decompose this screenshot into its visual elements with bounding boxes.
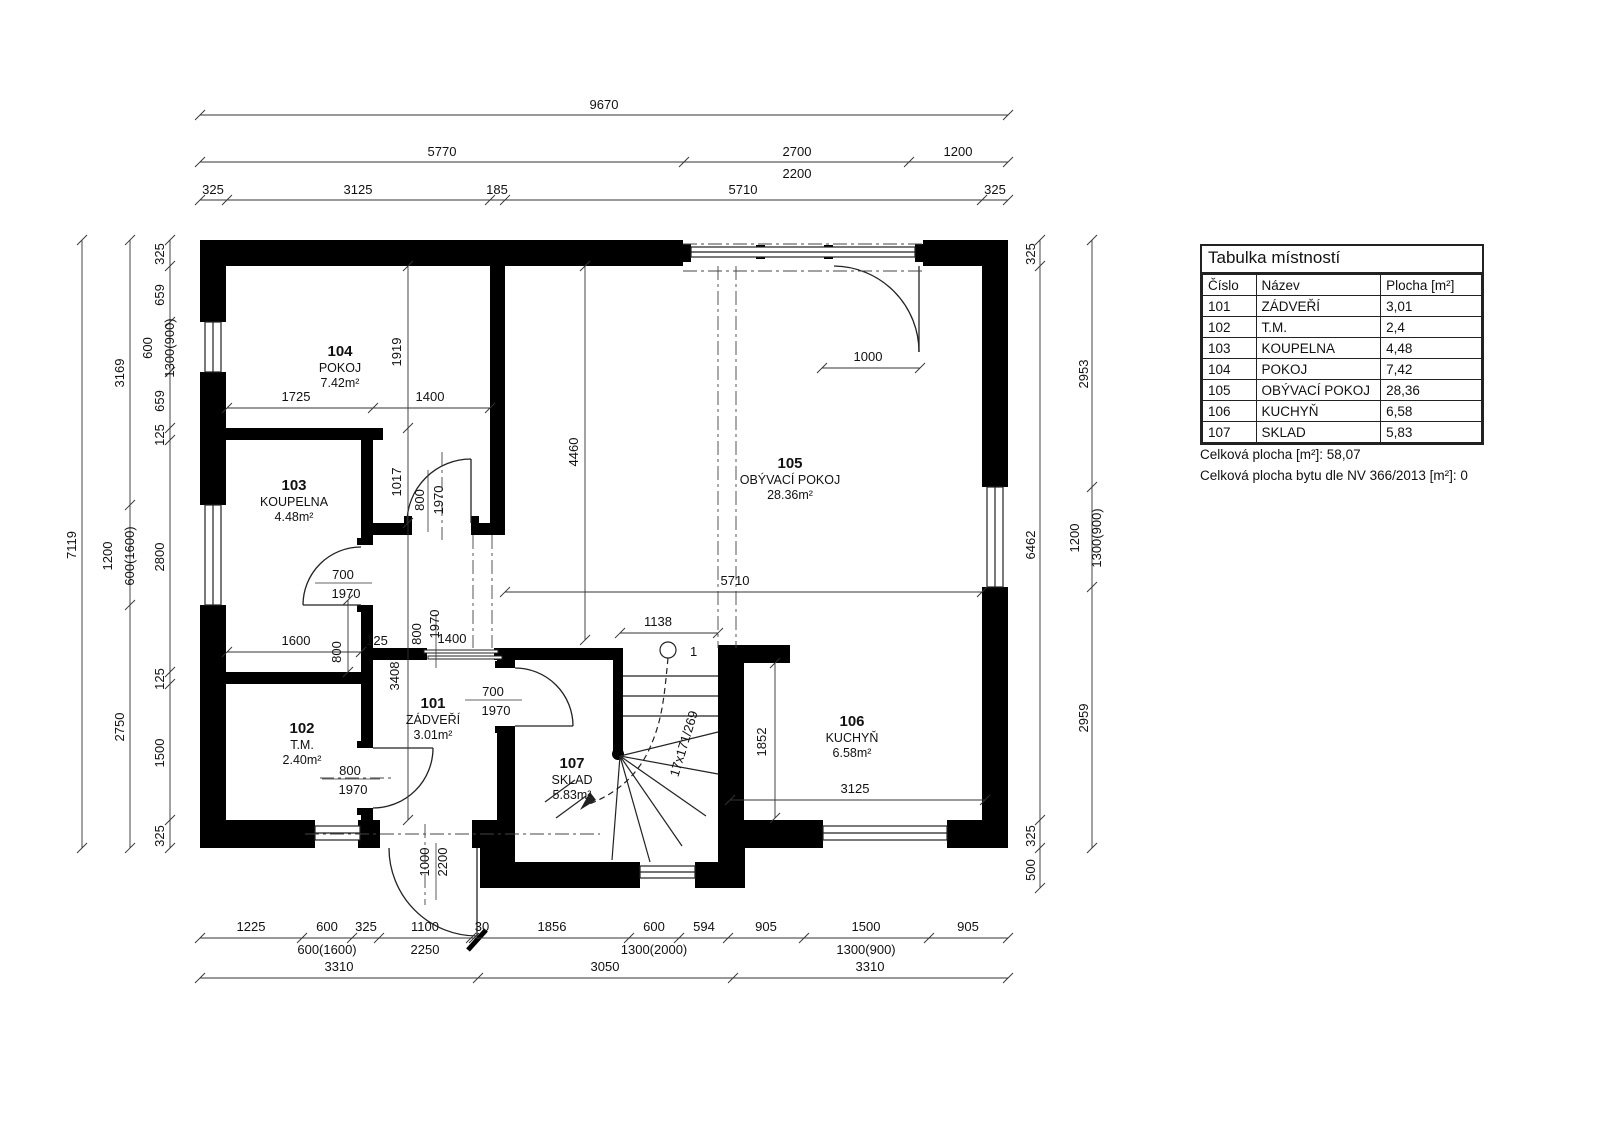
svg-text:T.M.: T.M.: [290, 738, 314, 752]
dim-label: 1000: [854, 349, 883, 364]
svg-text:105: 105: [777, 455, 802, 472]
dim-label: 2800: [152, 543, 167, 572]
door-size-label: 800: [412, 489, 427, 511]
room-table-title: Tabulka místností: [1202, 246, 1482, 274]
dim-label: 1500: [152, 739, 167, 768]
table-row: 106KUCHYŇ6,58: [1203, 401, 1482, 422]
dim-label: 325: [1023, 825, 1038, 847]
dim-label: 600(1600): [297, 942, 356, 957]
dim-label: 1852: [754, 728, 769, 757]
dim-label: 1400: [416, 389, 445, 404]
svg-text:4.48m²: 4.48m²: [275, 510, 314, 524]
svg-text:SKLAD: SKLAD: [552, 773, 593, 787]
dim-label: 2200: [783, 166, 812, 181]
room-label-102: 102 T.M. 2.40m²: [283, 720, 322, 767]
dim-label: 1300(900): [162, 318, 177, 377]
dim-label: 4460: [566, 438, 581, 467]
dim-label: 1300(2000): [621, 942, 688, 957]
dim-label: 2750: [112, 713, 127, 742]
dim-label: 7119: [64, 531, 79, 559]
svg-text:KOUPELNA: KOUPELNA: [260, 495, 329, 509]
svg-text:101: 101: [420, 695, 445, 712]
dim-label: 1100: [411, 919, 439, 934]
walls-layer: [200, 240, 1008, 950]
floorplan-drawing: 9670 5770 2700 2200 1200 325 3125 185 57…: [0, 0, 1600, 1132]
dim-label: 325: [1023, 243, 1038, 265]
dim-label: 325: [202, 182, 224, 197]
dim-label: 659: [152, 390, 167, 412]
dim-label: 1919: [389, 338, 404, 367]
room-table: Tabulka místností Číslo Název Plocha [m²…: [1200, 244, 1484, 445]
windows-layer: [205, 247, 1003, 878]
dim-label: 3125: [841, 781, 870, 796]
table-row: 102T.M.2,4: [1203, 317, 1482, 338]
dim-label: 1138: [644, 614, 672, 629]
dim-label: 1856: [538, 919, 567, 934]
dim-label: 905: [957, 919, 979, 934]
dim-label: 2959: [1076, 704, 1091, 733]
svg-text:ZÁDVEŘÍ: ZÁDVEŘÍ: [406, 712, 461, 727]
svg-text:5.83m²: 5.83m²: [553, 788, 592, 802]
dim-label: 5710: [721, 573, 750, 588]
svg-text:OBÝVACÍ POKOJ: OBÝVACÍ POKOJ: [740, 472, 841, 487]
dim-label: 1600: [282, 633, 311, 648]
dim-label: 659: [152, 284, 167, 306]
dim-label: 800: [409, 623, 424, 645]
dim-label: 325: [355, 919, 377, 934]
svg-text:KUCHYŇ: KUCHYŇ: [826, 730, 879, 745]
svg-text:106: 106: [839, 713, 864, 730]
door-size-label: 700: [482, 684, 504, 699]
total-area-text: Celková plocha [m²]: 58,07: [1200, 447, 1361, 462]
svg-text:7.42m²: 7.42m²: [321, 376, 360, 390]
svg-text:102: 102: [289, 720, 314, 737]
dim-label: 3169: [112, 359, 127, 388]
dim-label: 325: [152, 825, 167, 847]
stair-start-number: 1: [690, 644, 697, 659]
dim-label: 1725: [282, 389, 311, 404]
dim-label: 2953: [1076, 360, 1091, 389]
dim-label: 600: [643, 919, 665, 934]
svg-text:28.36m²: 28.36m²: [767, 488, 813, 502]
dim-label: 3310: [325, 959, 354, 974]
dim-label: 1970: [427, 610, 442, 639]
col-header-cislo: Číslo: [1203, 275, 1257, 296]
svg-text:104: 104: [327, 343, 353, 360]
staircase: [545, 642, 718, 862]
dim-label: 2700: [783, 144, 812, 159]
table-row: 101ZÁDVEŘÍ3,01: [1203, 296, 1482, 317]
svg-text:3.01m²: 3.01m²: [414, 728, 453, 742]
dim-label: 325: [152, 243, 167, 265]
svg-text:103: 103: [281, 477, 306, 494]
dim-label: 500: [1023, 859, 1038, 881]
door-size-label: 2200: [435, 848, 450, 877]
dim-label: 125: [366, 633, 388, 648]
door-size-label: 1970: [332, 586, 361, 601]
floorplan-svg: 9670 5770 2700 2200 1200 325 3125 185 57…: [0, 0, 1600, 1132]
dim-label: 3310: [856, 959, 885, 974]
dim-label: 125: [152, 424, 167, 446]
svg-text:POKOJ: POKOJ: [319, 361, 361, 375]
door-size-label: 700: [332, 567, 354, 582]
room-label-104: 104 POKOJ 7.42m²: [319, 343, 361, 390]
svg-text:2.40m²: 2.40m²: [283, 753, 322, 767]
dim-label: 800: [329, 641, 344, 663]
door-size-label: 800: [339, 763, 361, 778]
dim-label: 5770: [428, 144, 457, 159]
table-header-row: Číslo Název Plocha [m²]: [1203, 275, 1482, 296]
dim-label: 3050: [591, 959, 620, 974]
table-row: 104POKOJ7,42: [1203, 359, 1482, 380]
dim-label: 905: [755, 919, 777, 934]
dim-label: 125: [152, 668, 167, 690]
total-area-nv-text: Celková plocha bytu dle NV 366/2013 [m²]…: [1200, 468, 1468, 483]
table-row: 105OBÝVACÍ POKOJ28,36: [1203, 380, 1482, 401]
room-label-101: 101 ZÁDVEŘÍ 3.01m²: [406, 695, 461, 742]
dim-label: 1300(900): [1089, 508, 1104, 567]
col-header-nazev: Název: [1256, 275, 1381, 296]
room-label-107: 107 SKLAD 5.83m²: [552, 755, 593, 802]
dim-label: 600: [316, 919, 338, 934]
col-header-plocha: Plocha [m²]: [1381, 275, 1482, 296]
dim-label: 594: [693, 919, 715, 934]
dim-label: 2250: [411, 942, 440, 957]
dim-label: 9670: [590, 97, 619, 112]
dim-label: 600(1600): [122, 526, 137, 585]
room-label-105: 105 OBÝVACÍ POKOJ 28.36m²: [740, 455, 841, 502]
dim-label: 1200: [100, 542, 115, 571]
dim-label: 1500: [852, 919, 881, 934]
table-row: 103KOUPELNA4,48: [1203, 338, 1482, 359]
dim-label: 1017: [389, 468, 404, 497]
dim-label: 3408: [387, 662, 402, 691]
table-row: 107SKLAD5,83: [1203, 422, 1482, 443]
dim-label: 6462: [1023, 531, 1038, 560]
dim-label: 325: [984, 182, 1006, 197]
door-size-label: 1970: [431, 486, 446, 515]
dim-label: 1200: [1067, 524, 1082, 553]
dim-label: 30: [475, 919, 489, 934]
dim-label: 1225: [237, 919, 266, 934]
stair-start-marker: [660, 642, 676, 658]
door-size-label: 1000: [417, 848, 432, 877]
room-label-106: 106 KUCHYŇ 6.58m²: [826, 713, 879, 760]
dim-label: 1300(900): [836, 942, 895, 957]
dim-label: 3125: [344, 182, 373, 197]
svg-text:107: 107: [559, 755, 584, 772]
dim-label: 5710: [729, 182, 758, 197]
svg-text:6.58m²: 6.58m²: [833, 746, 872, 760]
door-size-label: 1970: [482, 703, 511, 718]
dim-label: 185: [486, 182, 508, 197]
room-label-103: 103 KOUPELNA 4.48m²: [260, 477, 329, 524]
dim-label: 600: [140, 337, 155, 359]
dim-label: 1200: [944, 144, 973, 159]
door-size-label: 1970: [339, 782, 368, 797]
